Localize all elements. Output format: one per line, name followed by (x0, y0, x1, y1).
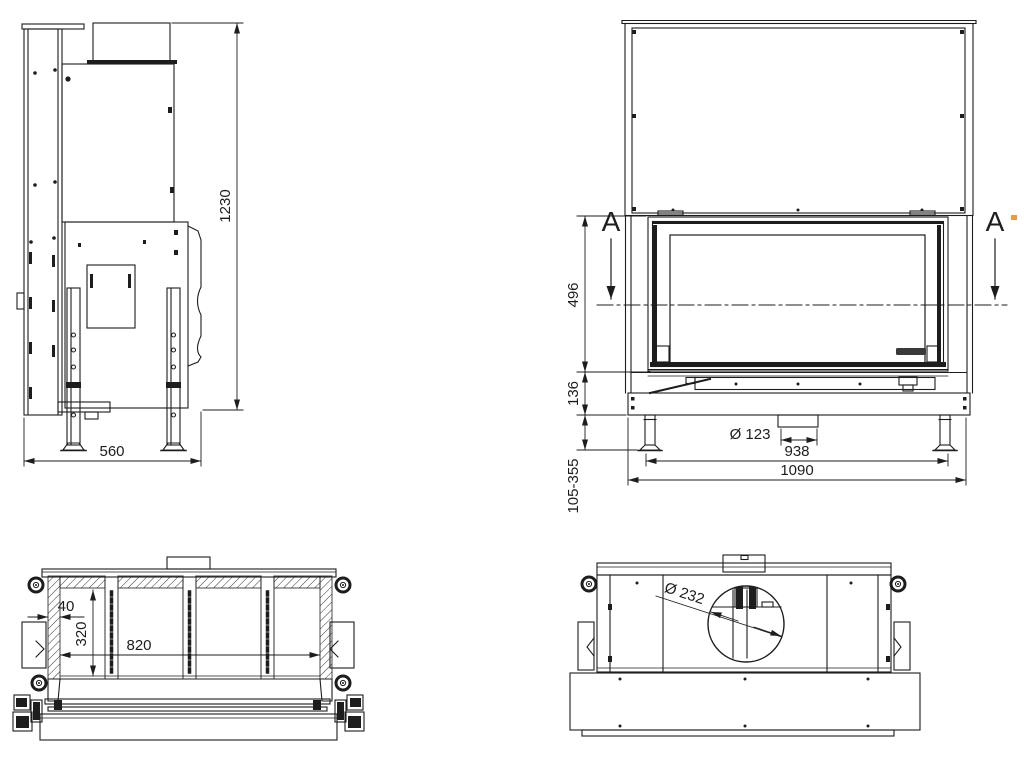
dim-overall-height: 1230 (172, 23, 243, 410)
adjustable-foot-right (933, 415, 957, 451)
damper-lever (650, 379, 710, 393)
back-panel (17, 24, 84, 415)
latch (899, 377, 917, 385)
leg-right (320, 679, 332, 701)
leg-left (48, 679, 60, 701)
front-view: A A 496 136 105-355 Ø 123 (565, 21, 1017, 514)
dim-overall-depth: 560 (24, 412, 201, 466)
dim-intake-diameter-label: Ø 123 (730, 426, 771, 443)
glass-pane (670, 235, 925, 363)
side-flange (188, 226, 201, 366)
base-plinth-top (570, 673, 920, 736)
technical-drawing-sheet: 1230 560 (0, 0, 1024, 758)
dim-glass-height-label: 496 (565, 282, 582, 307)
hood-panel (622, 21, 976, 216)
front-left-dimension-chain: 496 136 105-355 (565, 216, 650, 514)
side-bracket-right (330, 622, 354, 668)
adjustable-foot-left (638, 415, 662, 451)
section-arrow-left: A (602, 206, 621, 299)
dim-plinth-height-label: 136 (565, 381, 582, 406)
adjustable-leg-rear (161, 288, 186, 451)
section-arrow-right: A (986, 206, 1005, 299)
dim-overall-depth-label: 560 (99, 443, 124, 460)
dim-flue-diameter: Ø 232 (656, 579, 782, 637)
dim-feet-spacing-label: 938 (784, 443, 809, 460)
fireplace-drawing: 1230 560 (0, 0, 1024, 758)
dim-chamber-depth: 320 (73, 590, 93, 676)
flue-outlet-circle (708, 586, 784, 662)
roller-wheels-top (582, 577, 905, 591)
dim-chamber-depth-label: 320 (73, 621, 90, 646)
fastener-dots (29, 68, 71, 399)
burner-tray (631, 373, 966, 394)
section-letter-left: A (602, 206, 621, 237)
top-plate (597, 563, 891, 575)
top-view: Ø 232 (570, 555, 920, 736)
side-bracket-left-top (578, 622, 594, 670)
air-intake-duct (778, 415, 818, 427)
side-bracket-right-top (894, 622, 910, 670)
dim-leg-range-label: 105-355 (565, 458, 582, 513)
drive-mechanism-left (13, 695, 42, 731)
artifact-mark (1011, 215, 1017, 220)
service-door (87, 265, 135, 328)
glass-door (648, 217, 948, 371)
rib-strips (105, 576, 274, 679)
section-letter-right: A (986, 206, 1005, 237)
side-bracket-left (22, 622, 46, 668)
section-view-a-a: 40 320 820 (13, 557, 364, 740)
flue-duct (87, 23, 177, 64)
base-plinth (628, 393, 970, 427)
glass-panel-assembly (40, 699, 337, 740)
flue-collar-stub (167, 557, 210, 569)
drive-mechanism-right (335, 695, 364, 731)
dim-flue-diameter-label: Ø 232 (662, 579, 706, 608)
dim-chamber-width-label: 820 (126, 637, 151, 654)
side-view: 1230 560 (17, 23, 243, 466)
brand-mark (896, 348, 926, 355)
convection-box (62, 64, 174, 222)
dim-overall-width-label: 1090 (780, 462, 813, 479)
body-outline (597, 575, 891, 672)
dim-overall-height-label: 1230 (217, 189, 234, 222)
dim-wall-thickness-label: 40 (58, 598, 75, 615)
